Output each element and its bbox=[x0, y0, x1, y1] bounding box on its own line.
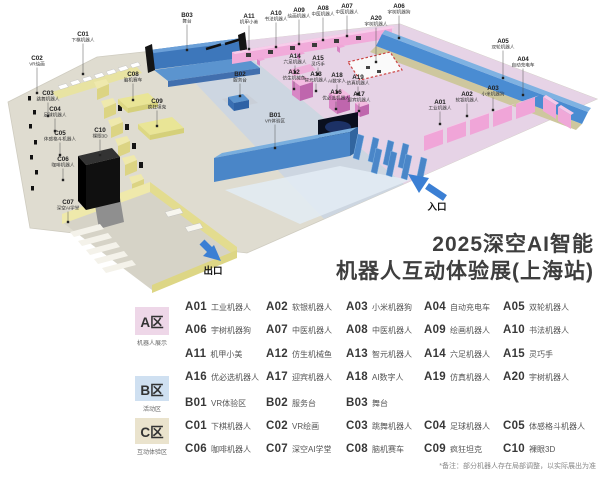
legend-item-code: C05 bbox=[503, 420, 525, 432]
legend-item-code: C06 bbox=[185, 443, 207, 455]
booth-name: 智元机器人 bbox=[305, 77, 328, 84]
booth-name: 软银机器人 bbox=[456, 97, 479, 104]
legend-item-code: C02 bbox=[266, 420, 288, 432]
legend-item-code: C10 bbox=[503, 443, 525, 455]
booth-name: 足球机器人 bbox=[44, 112, 67, 119]
legend-item-a08: A08中医机器人 bbox=[346, 324, 424, 347]
booth-name: 机甲小美 bbox=[240, 19, 259, 26]
legend-item-code: B03 bbox=[346, 397, 368, 409]
legend-item-code: C04 bbox=[424, 420, 446, 432]
legend-item-name: 书法机器人 bbox=[529, 325, 569, 336]
poster-title: 2025深空AI智能 机器人互动体验展(上海站) bbox=[336, 231, 594, 285]
legend-item-a01: A01工业机器人 bbox=[185, 301, 266, 324]
legend-item-c07: C07深空AI学堂 bbox=[266, 443, 346, 466]
legend-item-code: A10 bbox=[503, 324, 525, 336]
legend-item-name: 舞台 bbox=[372, 398, 388, 409]
legend-item-b02: B02服务台 bbox=[266, 397, 346, 409]
legend-item-c03: C03跳舞机器人 bbox=[346, 420, 424, 443]
booth-name: 绘画机器人 bbox=[288, 13, 311, 20]
booth-name: 自动充电车 bbox=[512, 62, 535, 69]
booth-name: 灵巧手 bbox=[311, 61, 325, 68]
legend-item-name: 脑机赛车 bbox=[372, 444, 404, 455]
legend-item-code: A05 bbox=[503, 301, 525, 313]
booth-name: 深空AI学堂 bbox=[57, 205, 80, 212]
legend-item-a02: A02软银机器人 bbox=[266, 301, 346, 324]
legend-item-name: 小米机器狗 bbox=[372, 302, 412, 313]
legend-item-code: A11 bbox=[185, 348, 206, 360]
exhibition-floorplan-poster: 入口 出口 C01下棋机器人C02VR绘画C03跳舞机器人C04足球机器人C05… bbox=[0, 0, 600, 482]
legend-item-name: 智元机器人 bbox=[372, 349, 412, 360]
booth-name: 体感格斗机器人 bbox=[44, 136, 77, 143]
entrance-label: 入口 bbox=[426, 202, 446, 213]
legend-item-code: A14 bbox=[424, 348, 446, 360]
legend-item-a07: A07中医机器人 bbox=[266, 324, 346, 347]
legend-item-code: C09 bbox=[424, 443, 446, 455]
booth-name: 仿真机器人 bbox=[347, 80, 370, 87]
legend-item-b01: B01VR体验区 bbox=[185, 397, 266, 409]
legend-item-code: A15 bbox=[503, 348, 525, 360]
booth-name: 工业机器人 bbox=[429, 105, 452, 112]
c10-black-booth bbox=[78, 148, 120, 210]
legend-item-name: 中医机器人 bbox=[292, 325, 332, 336]
legend-item-a03: A03小米机器狗 bbox=[346, 301, 424, 324]
legend-item-code: B02 bbox=[266, 397, 288, 409]
legend-item-name: 服务台 bbox=[292, 398, 316, 409]
legend-item-name: 双轮机器人 bbox=[529, 302, 569, 313]
title-line2: 机器人互动体验展(上海站) bbox=[336, 258, 594, 285]
legend-item-code: C01 bbox=[185, 420, 207, 432]
legend-item-name: 宇树机器狗 bbox=[211, 325, 251, 336]
legend-item-name: 机甲小美 bbox=[210, 349, 242, 360]
legend-item-name: 仿生机械鱼 bbox=[292, 349, 332, 360]
booth-name: 舞台 bbox=[182, 18, 192, 25]
legend-item-name: 深空AI学堂 bbox=[292, 444, 332, 455]
legend-item-name: 绘画机器人 bbox=[450, 325, 490, 336]
zone-c-sublabel: 互动体验区 bbox=[126, 447, 178, 456]
legend-item-code: A08 bbox=[346, 324, 368, 336]
entrance-arrow-icon bbox=[408, 174, 429, 193]
legend-item-c04: C04足球机器人 bbox=[424, 420, 503, 443]
legend-zone-b: B区 活动区 B01VR体验区B02服务台B03舞台 bbox=[130, 376, 600, 420]
booth-name: 疯狂坦克 bbox=[148, 104, 167, 111]
legend-item-code: C03 bbox=[346, 420, 368, 432]
legend-item-a09: A09绘画机器人 bbox=[424, 324, 503, 347]
legend-item-name: 跳舞机器人 bbox=[372, 421, 412, 432]
booth-name: 中医机器人 bbox=[336, 9, 359, 16]
legend-item-name: 中医机器人 bbox=[372, 325, 412, 336]
legend-item-a04: A04自动充电车 bbox=[424, 301, 503, 324]
legend-item-a05: A05双轮机器人 bbox=[503, 301, 569, 324]
legend-item-name: 软银机器人 bbox=[292, 302, 332, 313]
legend-item-code: A07 bbox=[266, 324, 288, 336]
legend-item-code: A13 bbox=[346, 348, 368, 360]
booth-name: 裸眼3D bbox=[92, 133, 108, 140]
booth-name: 仿生机械鱼 bbox=[283, 75, 306, 82]
zone-b-items: B01VR体验区B02服务台B03舞台 bbox=[185, 397, 503, 409]
booth-name: VR绘画 bbox=[29, 61, 45, 68]
legend-item-a12: A12仿生机械鱼 bbox=[266, 348, 346, 371]
title-line1: 2025深空AI智能 bbox=[336, 231, 594, 258]
booth-name: 跳舞机器人 bbox=[37, 96, 60, 103]
legend-item-code: C08 bbox=[346, 443, 368, 455]
zone-c-items: C01下棋机器人C02VR绘画C03跳舞机器人C04足球机器人C05体感格斗机器… bbox=[185, 420, 585, 466]
legend-item-code: A01 bbox=[185, 301, 207, 313]
footnote: *备注：部分机器人存在局部调整，以实际展出为准 bbox=[439, 461, 596, 471]
legend-item-name: 咖啡机器人 bbox=[211, 444, 251, 455]
legend-item-name: VR绘画 bbox=[292, 421, 319, 432]
legend-item-code: A09 bbox=[424, 324, 446, 336]
booth-name: 六足机器人 bbox=[284, 59, 307, 66]
legend-item-name: 工业机器人 bbox=[211, 302, 251, 313]
legend-item-code: A06 bbox=[185, 324, 207, 336]
booth-name: 迎宾机器人 bbox=[348, 97, 371, 104]
legend-item-name: 六足机器人 bbox=[450, 349, 490, 360]
zone-c-badge: C区 bbox=[135, 418, 169, 444]
booth-name: 服务台 bbox=[233, 77, 247, 84]
legend-item-c02: C02VR绘画 bbox=[266, 420, 346, 443]
legend-item-name: 足球机器人 bbox=[450, 421, 490, 432]
legend-item-name: 体感格斗机器人 bbox=[529, 421, 585, 432]
legend-item-b03: B03舞台 bbox=[346, 397, 424, 409]
exit-label: 出口 bbox=[203, 265, 222, 277]
zone-a-sublabel: 机器人展示 bbox=[126, 338, 178, 347]
booth-name: 宇树机器狗 bbox=[388, 9, 411, 16]
booth-name: 中医机器人 bbox=[312, 11, 335, 18]
legend-item-a15: A15灵巧手 bbox=[503, 348, 569, 371]
booth-name: 宇树机器人 bbox=[365, 21, 388, 28]
legend-item-a13: A13智元机器人 bbox=[346, 348, 424, 371]
zone-b-badge: B区 bbox=[135, 376, 169, 401]
booth-name: 小米机器狗 bbox=[482, 91, 505, 98]
booth-name: 双轮机器人 bbox=[492, 44, 515, 51]
legend-item-a10: A10书法机器人 bbox=[503, 324, 569, 347]
legend-item-name: 裸眼3D bbox=[529, 444, 555, 455]
legend-item-code: A12 bbox=[266, 348, 288, 360]
legend-item-code: B01 bbox=[185, 397, 207, 409]
legend-item-c05: C05体感格斗机器人 bbox=[503, 420, 585, 443]
legend-item-code: A04 bbox=[424, 301, 446, 313]
legend-item-c08: C08脑机赛车 bbox=[346, 443, 424, 466]
legend-item-code: A02 bbox=[266, 301, 288, 313]
legend-item-a06: A06宇树机器狗 bbox=[185, 324, 266, 347]
legend-item-c01: C01下棋机器人 bbox=[185, 420, 266, 443]
booth-name: 优必选机器人 bbox=[322, 95, 350, 102]
booth-name: 脑机赛车 bbox=[124, 77, 143, 84]
booth-name: 书法机器人 bbox=[265, 16, 288, 23]
legend-item-code: A03 bbox=[346, 301, 368, 313]
legend-item-name: 疯狂坦克 bbox=[450, 444, 482, 455]
legend-item-name: 下棋机器人 bbox=[211, 421, 251, 432]
legend-item-name: 灵巧手 bbox=[529, 349, 553, 360]
legend-item-c06: C06咖啡机器人 bbox=[185, 443, 266, 466]
legend-item-a11: A11机甲小美 bbox=[185, 348, 266, 371]
zone-a-badge: A区 bbox=[135, 307, 169, 335]
legend-item-name: VR体验区 bbox=[211, 398, 246, 409]
legend-item-code: C07 bbox=[266, 443, 288, 455]
booth-name: 咖啡机器人 bbox=[52, 162, 75, 169]
booth-name: AI数字人 bbox=[328, 78, 347, 85]
entrance-marker: 入口 bbox=[408, 174, 447, 213]
legend-item-name: 自动充电车 bbox=[450, 302, 490, 313]
booth-name: VR体验区 bbox=[265, 118, 286, 125]
legend-item-a14: A14六足机器人 bbox=[424, 348, 503, 371]
booth-name: 下棋机器人 bbox=[72, 37, 95, 44]
zone-b-sublabel: 活动区 bbox=[126, 404, 178, 413]
